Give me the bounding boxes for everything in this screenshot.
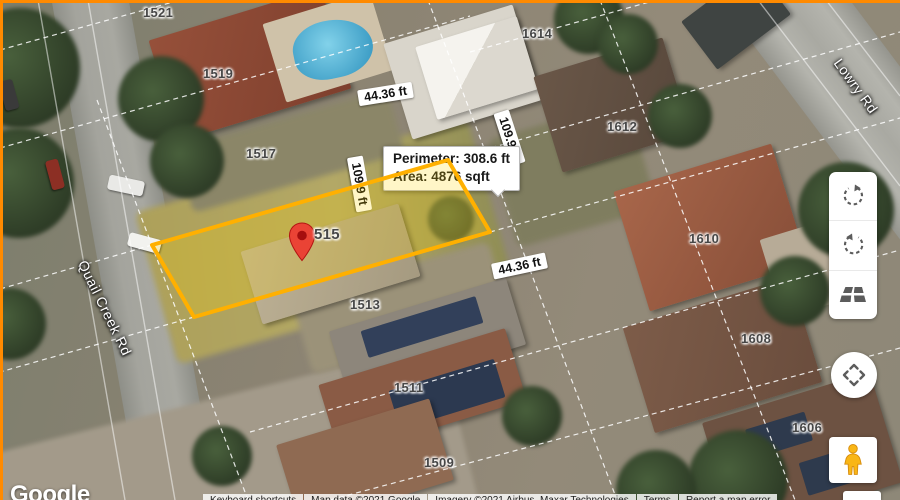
address-label: 1509: [424, 455, 454, 470]
terms-link[interactable]: Terms: [637, 494, 678, 500]
keyboard-shortcuts-link[interactable]: Keyboard shortcuts: [203, 494, 303, 500]
tree: [150, 124, 224, 198]
capture-border-left: [0, 0, 3, 500]
clipped-control-button[interactable]: [843, 491, 881, 500]
address-label: 1610: [689, 231, 719, 246]
map-data-credit: Map data ©2021 Google: [304, 494, 427, 500]
report-error-link[interactable]: Report a map error: [679, 494, 777, 500]
area-value: Area: 4876 sqft: [393, 168, 510, 186]
tree: [760, 256, 830, 326]
tree: [648, 84, 712, 148]
pegman-icon: [839, 442, 867, 478]
address-label: 1608: [741, 331, 771, 346]
tree: [192, 426, 252, 486]
perimeter-value: Perimeter: 308.6 ft: [393, 150, 510, 168]
address-label: 1517: [246, 146, 276, 161]
pan-camera-button[interactable]: [831, 352, 877, 398]
address-label: 1511: [394, 380, 423, 395]
address-label: 1521: [143, 5, 173, 20]
tree: [0, 288, 46, 360]
pin-icon: [288, 222, 316, 262]
tree: [598, 14, 658, 74]
rotate-clockwise-icon: [841, 184, 866, 209]
address-label: 1606: [792, 420, 822, 435]
maps-satellite-view: 44.36 ft 44.36 ft 109.9 ft 109.9 ft Peri…: [0, 0, 900, 500]
tilt-45-icon: [838, 285, 868, 305]
pan-arrows-icon: [841, 362, 867, 388]
rotate-tilt-control-panel: [829, 172, 877, 319]
address-label: 1612: [607, 119, 637, 134]
pin-address-label: 515: [314, 226, 340, 243]
map-pin[interactable]: [288, 222, 316, 267]
tree: [616, 450, 696, 500]
tree: [502, 386, 562, 446]
address-label: 1614: [522, 26, 552, 41]
tree: [428, 196, 474, 242]
google-logo: Google: [10, 481, 90, 500]
rotate-counterclockwise-button[interactable]: [829, 220, 877, 269]
rotate-clockwise-button[interactable]: [829, 172, 877, 220]
pegman-street-view-button[interactable]: [829, 437, 877, 483]
map-canvas[interactable]: [0, 0, 900, 500]
capture-border-top: [0, 0, 900, 3]
address-label: 1519: [203, 66, 233, 81]
imagery-credit: Imagery ©2021 Airbus, Maxar Technologies: [428, 494, 635, 500]
tilt-view-button[interactable]: [829, 270, 877, 319]
attribution-bar: Keyboard shortcuts Map data ©2021 Google…: [203, 494, 777, 500]
rotate-counterclockwise-icon: [841, 233, 866, 258]
measurement-tooltip: Perimeter: 308.6 ft Area: 4876 sqft: [383, 146, 520, 191]
address-label: 1513: [350, 297, 380, 312]
